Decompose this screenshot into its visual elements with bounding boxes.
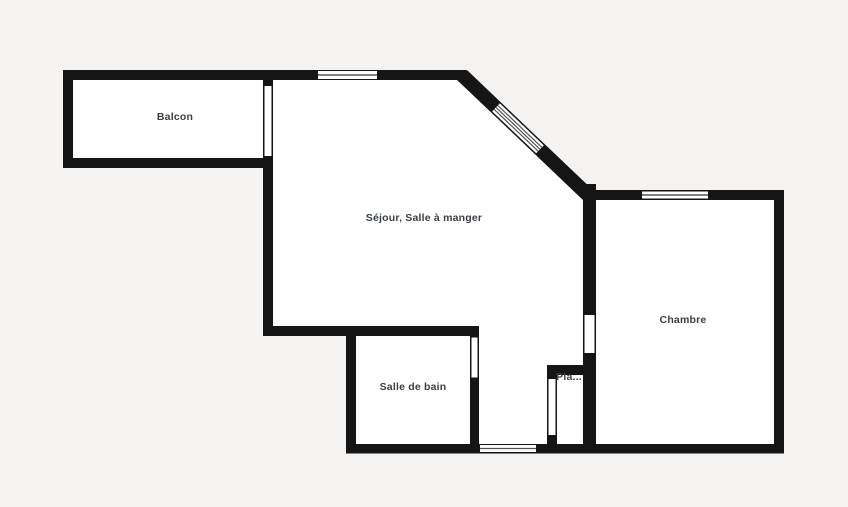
wall-bottom	[346, 444, 784, 454]
wall-balcon-left	[63, 70, 73, 168]
wall-sejour-bottom	[263, 326, 479, 336]
door-salle-de-bain-icon	[472, 338, 478, 378]
door-balcon-icon	[265, 86, 272, 156]
door-chambre-icon	[585, 315, 595, 353]
wall-top	[63, 70, 466, 80]
window-chambre-top-icon	[642, 192, 708, 199]
window-hall-bottom-icon	[480, 445, 536, 452]
floor-plan: Balcon Séjour, Salle à manger Chambre Sa…	[0, 0, 848, 507]
wall-salle-de-bain-left	[346, 326, 356, 454]
door-placard-icon	[549, 379, 556, 435]
floor-plan-svg	[0, 0, 848, 507]
wall-balcon-bottom	[63, 158, 273, 168]
window-sejour-top-icon	[318, 71, 377, 79]
wall-chambre-right	[774, 190, 784, 454]
apartment-floor	[63, 70, 784, 454]
